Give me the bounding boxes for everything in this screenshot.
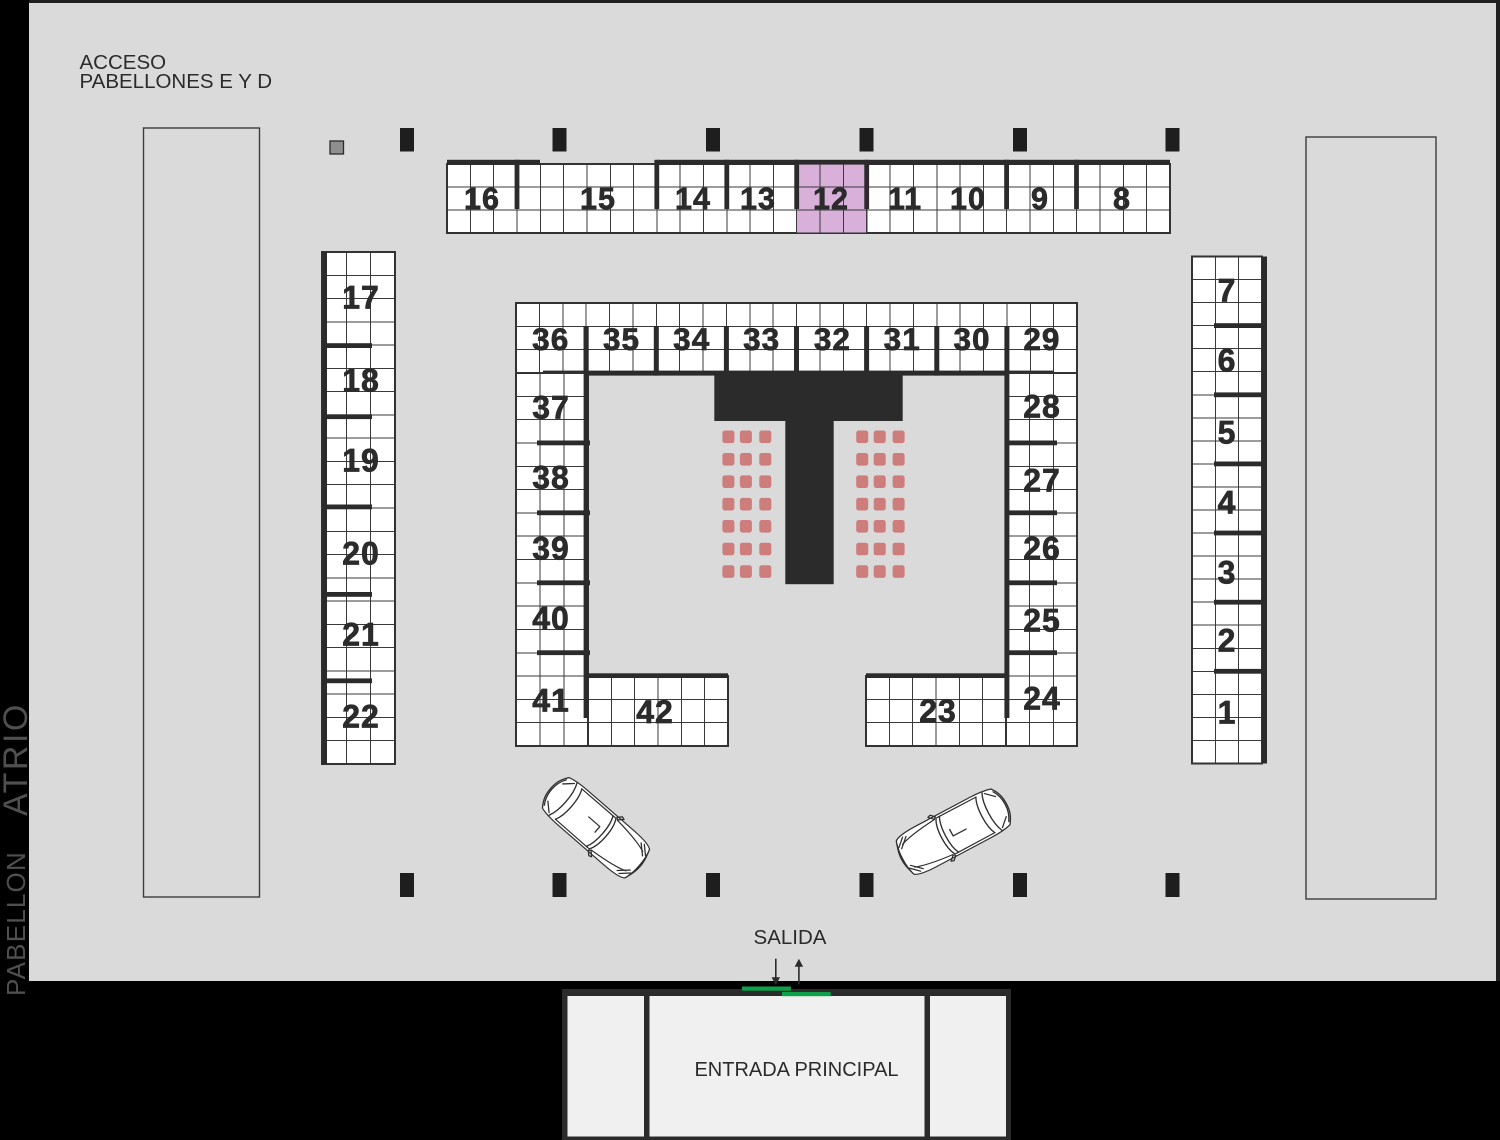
- svg-text:35: 35: [603, 321, 640, 357]
- svg-text:25: 25: [1023, 603, 1061, 639]
- svg-text:11: 11: [888, 182, 922, 216]
- svg-text:32: 32: [814, 321, 851, 357]
- svg-text:2: 2: [1218, 623, 1237, 659]
- svg-text:26: 26: [1023, 531, 1061, 567]
- svg-text:15: 15: [580, 182, 616, 216]
- svg-text:30: 30: [953, 321, 990, 357]
- svg-text:12: 12: [813, 182, 849, 216]
- svg-text:21: 21: [342, 617, 380, 653]
- svg-text:1: 1: [1218, 695, 1237, 731]
- svg-text:22: 22: [342, 699, 380, 735]
- svg-text:19: 19: [342, 443, 380, 479]
- svg-text:10: 10: [950, 182, 986, 216]
- svg-text:34: 34: [673, 321, 710, 357]
- svg-text:42: 42: [636, 694, 674, 730]
- svg-text:6: 6: [1218, 343, 1237, 379]
- svg-text:36: 36: [532, 321, 569, 357]
- svg-text:14: 14: [675, 182, 711, 216]
- svg-text:7: 7: [1218, 273, 1237, 309]
- svg-text:16: 16: [464, 182, 500, 216]
- svg-text:ENTRADA PRINCIPAL: ENTRADA PRINCIPAL: [694, 1059, 898, 1081]
- svg-text:PABELLONES E Y D: PABELLONES E Y D: [80, 70, 273, 93]
- svg-text:4: 4: [1218, 485, 1237, 521]
- svg-text:28: 28: [1023, 389, 1061, 425]
- svg-text:23: 23: [919, 693, 957, 729]
- svg-text:41: 41: [532, 683, 570, 719]
- svg-text:37: 37: [532, 390, 570, 426]
- svg-text:39: 39: [532, 531, 570, 567]
- svg-text:31: 31: [884, 321, 921, 357]
- svg-text:18: 18: [342, 363, 380, 399]
- svg-text:38: 38: [532, 460, 570, 496]
- svg-text:33: 33: [743, 321, 780, 357]
- svg-text:29: 29: [1023, 321, 1060, 357]
- svg-text:27: 27: [1023, 463, 1061, 499]
- svg-text:13: 13: [740, 182, 776, 216]
- svg-text:SALIDA: SALIDA: [754, 926, 827, 949]
- svg-text:PABELLON: PABELLON: [1, 851, 31, 996]
- svg-text:20: 20: [342, 536, 380, 572]
- svg-text:17: 17: [342, 280, 380, 316]
- svg-text:3: 3: [1218, 555, 1237, 591]
- svg-text:40: 40: [532, 601, 570, 637]
- svg-text:5: 5: [1218, 415, 1237, 451]
- svg-text:24: 24: [1023, 681, 1061, 717]
- svg-text:ATRIO: ATRIO: [0, 702, 35, 816]
- svg-text:9: 9: [1031, 182, 1049, 216]
- svg-text:8: 8: [1113, 182, 1131, 216]
